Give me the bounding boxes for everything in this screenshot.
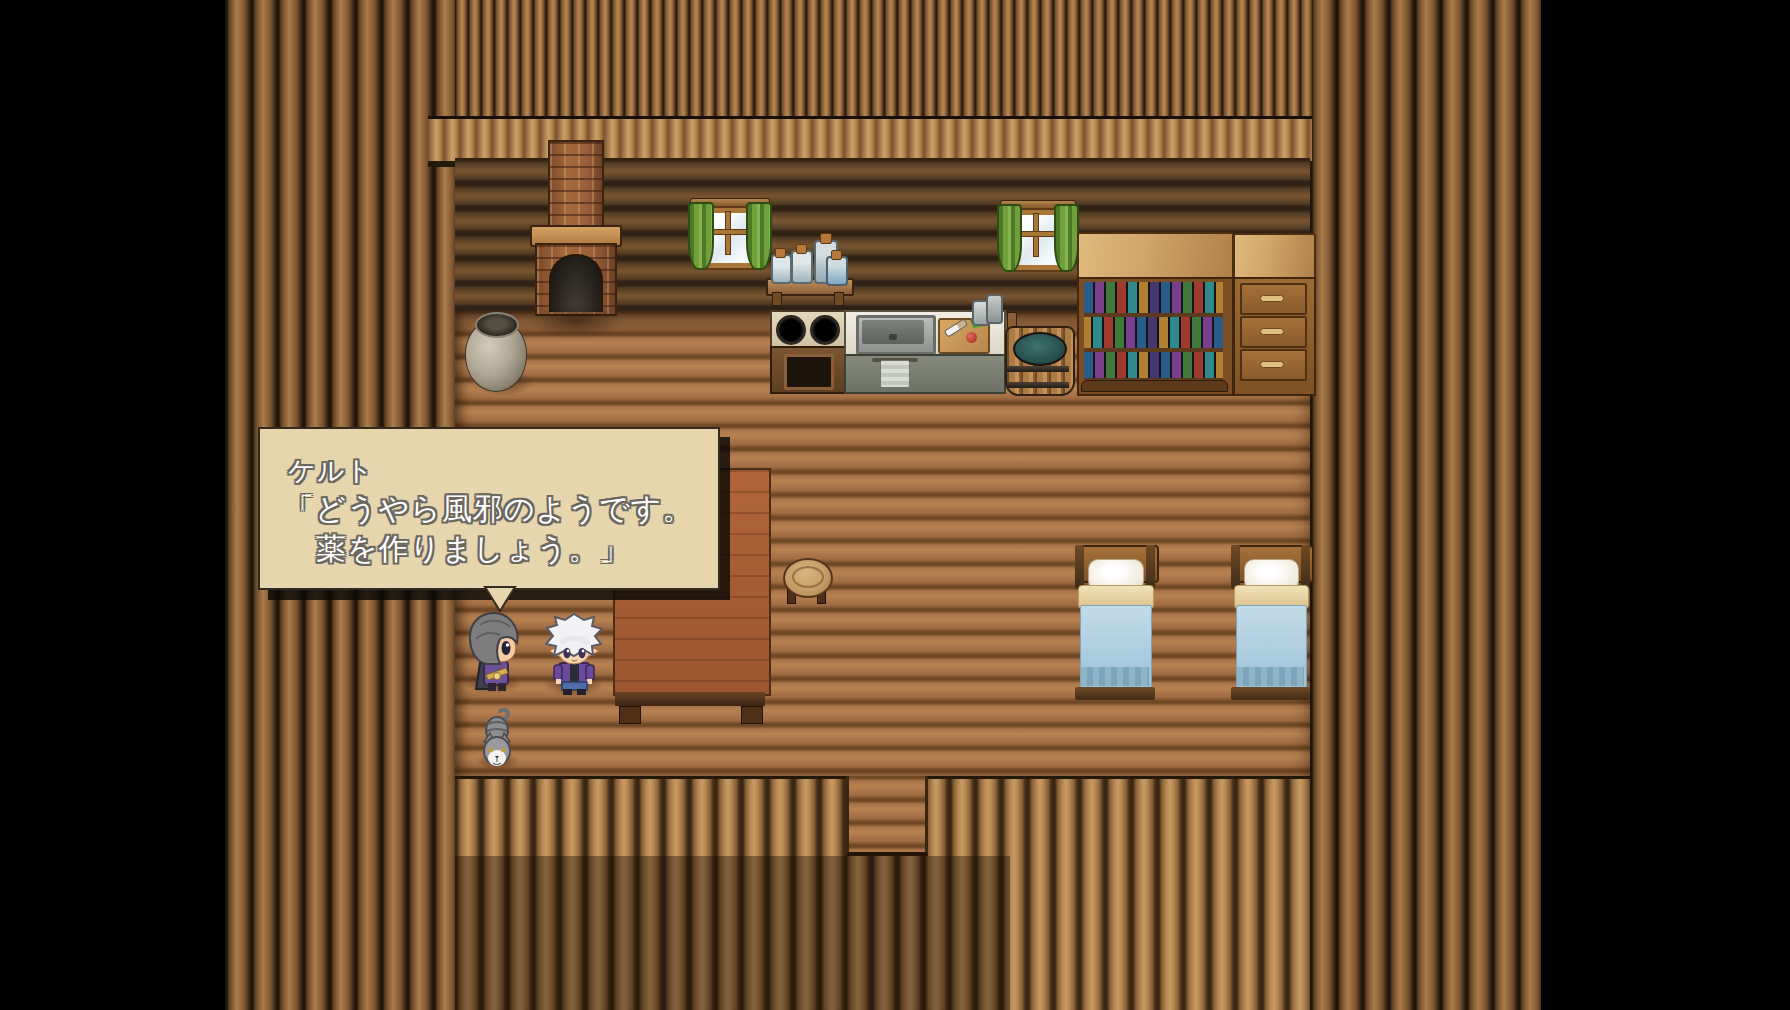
- counter-jar: [986, 294, 1003, 324]
- jar-shelf: [766, 244, 850, 304]
- window-transom: [709, 230, 747, 234]
- clay-pot: [465, 312, 527, 394]
- jar-cork: [831, 250, 842, 260]
- bed-foot-rail: [1075, 687, 1155, 700]
- bookshelf-top: [1077, 232, 1234, 281]
- curtain-left: [688, 202, 714, 270]
- jar: [771, 254, 792, 284]
- below-house-shade: [455, 856, 1010, 1010]
- game-viewport[interactable]: ケルト 「どうやら風邪のようです。 薬を作りましょう。」: [0, 0, 1790, 1010]
- blanket-foot: [1081, 667, 1149, 686]
- book-row: [1084, 317, 1223, 352]
- dialog-line: 「どうやら風邪のようです。: [284, 489, 693, 530]
- table-leg: [741, 706, 763, 724]
- stove-burner: [776, 315, 806, 345]
- fireplace-floor-shadow: [528, 304, 624, 338]
- cat[interactable]: [480, 708, 514, 770]
- bookshelf-base: [1081, 380, 1228, 392]
- bucket-band: [1007, 382, 1069, 388]
- dialog-tail: [482, 586, 518, 614]
- jar-cork: [796, 244, 807, 254]
- character-kelt[interactable]: [466, 611, 522, 695]
- drawer-handle: [1260, 361, 1284, 368]
- bed-post: [1146, 545, 1155, 589]
- bed-post: [1075, 545, 1084, 589]
- sink-counter: [844, 310, 1002, 390]
- book-row: [1084, 352, 1223, 382]
- table-leg: [619, 706, 641, 724]
- jar: [826, 256, 848, 286]
- bed-post: [1301, 545, 1310, 589]
- bucket-band: [1007, 366, 1069, 372]
- doorway-floor: [846, 776, 928, 856]
- sink-inner: [862, 320, 924, 344]
- pot-rim: [475, 312, 519, 338]
- oven-opening: [784, 354, 834, 390]
- curtain-left: [997, 204, 1022, 272]
- stove-burner: [810, 315, 840, 345]
- bed-post: [1231, 545, 1240, 589]
- bed-right: [1231, 545, 1310, 702]
- dialog-line: 薬を作りましょう。」: [316, 529, 630, 570]
- towel: [880, 360, 910, 388]
- table-edge: [615, 692, 765, 706]
- counter-base: [844, 354, 1006, 394]
- dresser: [1233, 233, 1312, 392]
- dialog-box[interactable]: ケルト 「どうやら風邪のようです。 薬を作りましょう。」: [258, 427, 720, 590]
- character-white-elf[interactable]: [545, 613, 603, 695]
- drawer-handle: [1260, 328, 1284, 335]
- blanket-foot: [1237, 667, 1304, 686]
- bookshelf: [1077, 232, 1230, 392]
- exterior-right-wall: [1310, 0, 1541, 1010]
- bed-left: [1075, 545, 1155, 702]
- shelf-leg: [834, 292, 844, 306]
- window-transom: [1018, 232, 1054, 236]
- water-bucket: [1005, 318, 1071, 394]
- window-right: [1000, 200, 1074, 272]
- dialog-speaker: ケルト: [288, 453, 374, 489]
- bucket-water: [1013, 332, 1067, 366]
- shelf-leg: [772, 292, 782, 306]
- bed-foot-rail: [1231, 687, 1310, 700]
- jar: [791, 250, 813, 284]
- book-row: [1084, 282, 1223, 317]
- dresser-top: [1233, 233, 1316, 281]
- stool: [783, 558, 829, 606]
- stool-ring: [792, 566, 824, 588]
- curtain-right: [1054, 204, 1079, 272]
- exterior-top-wall: [455, 0, 1312, 120]
- jar-cork: [775, 248, 786, 258]
- radish: [966, 332, 977, 343]
- jar-cork: [820, 233, 832, 244]
- drain: [889, 334, 897, 340]
- stove: [770, 310, 844, 390]
- drawer-handle: [1260, 295, 1284, 302]
- window-left: [690, 198, 768, 270]
